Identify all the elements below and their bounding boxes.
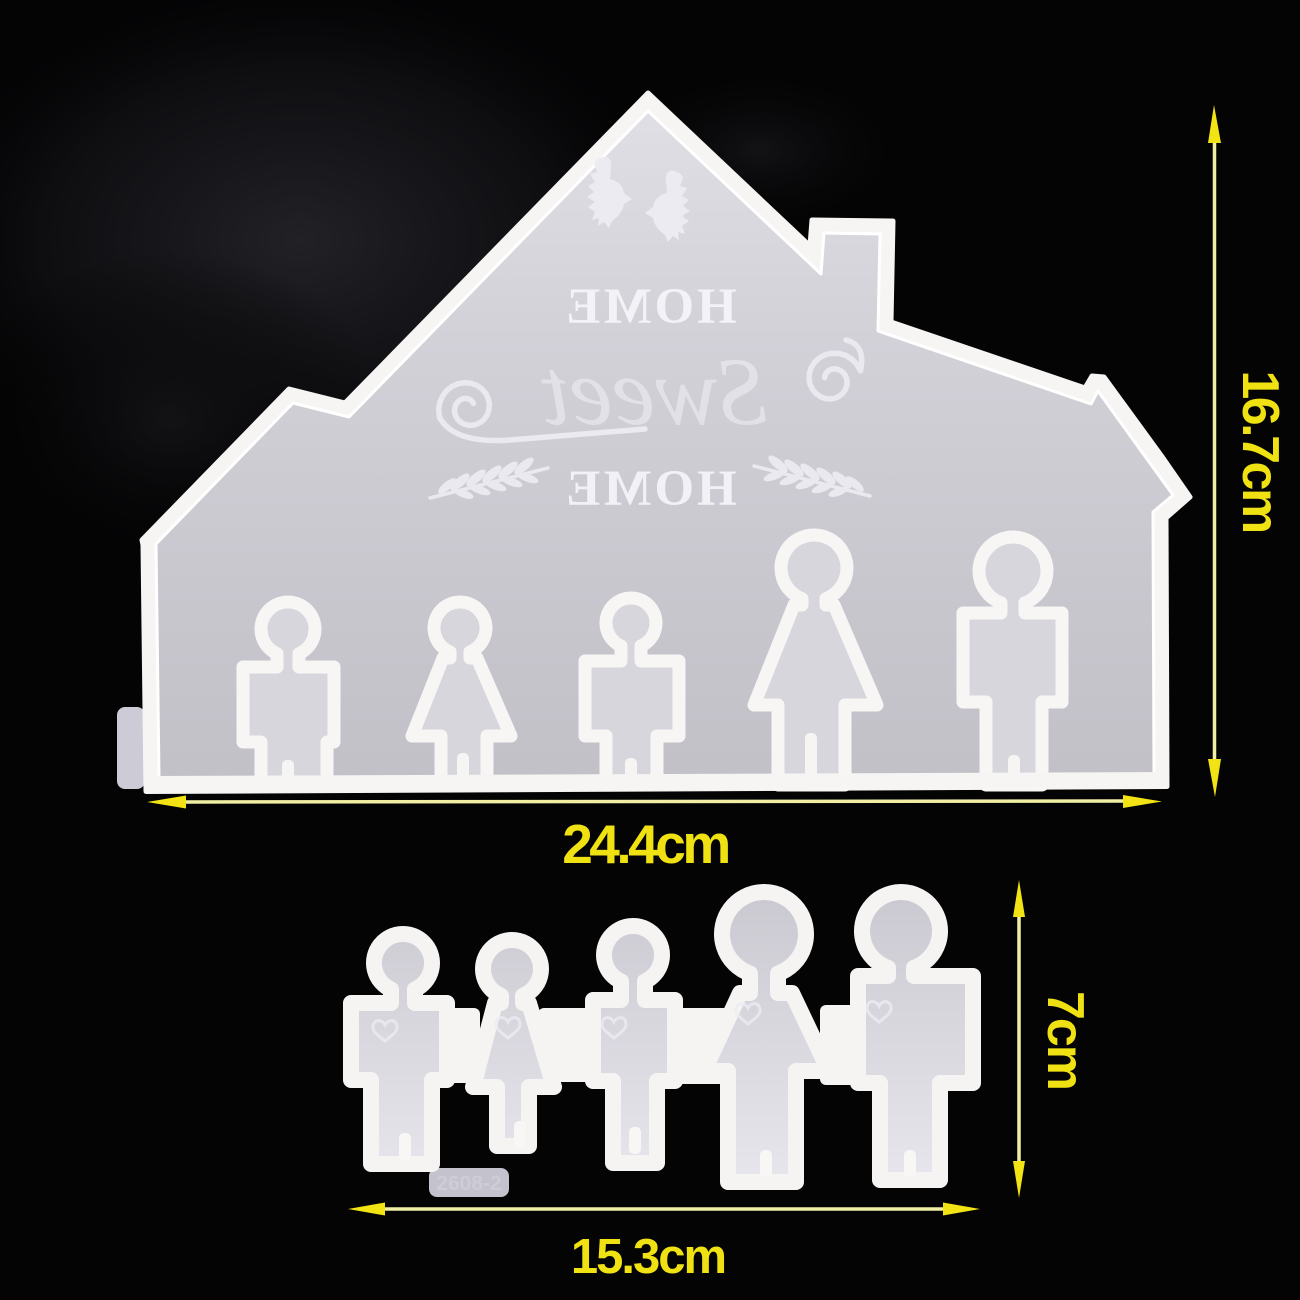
svg-text:HOME: HOME (563, 279, 737, 335)
svg-text:24.4cm: 24.4cm (562, 813, 728, 875)
svg-text:HOME: HOME (563, 461, 737, 517)
svg-text:7cm: 7cm (1036, 991, 1094, 1089)
svg-text:Sweet: Sweet (541, 338, 767, 445)
svg-text:15.3cm: 15.3cm (571, 1230, 725, 1284)
svg-text:16.7cm: 16.7cm (1231, 370, 1289, 532)
svg-text:2608-2: 2608-2 (436, 1172, 501, 1195)
